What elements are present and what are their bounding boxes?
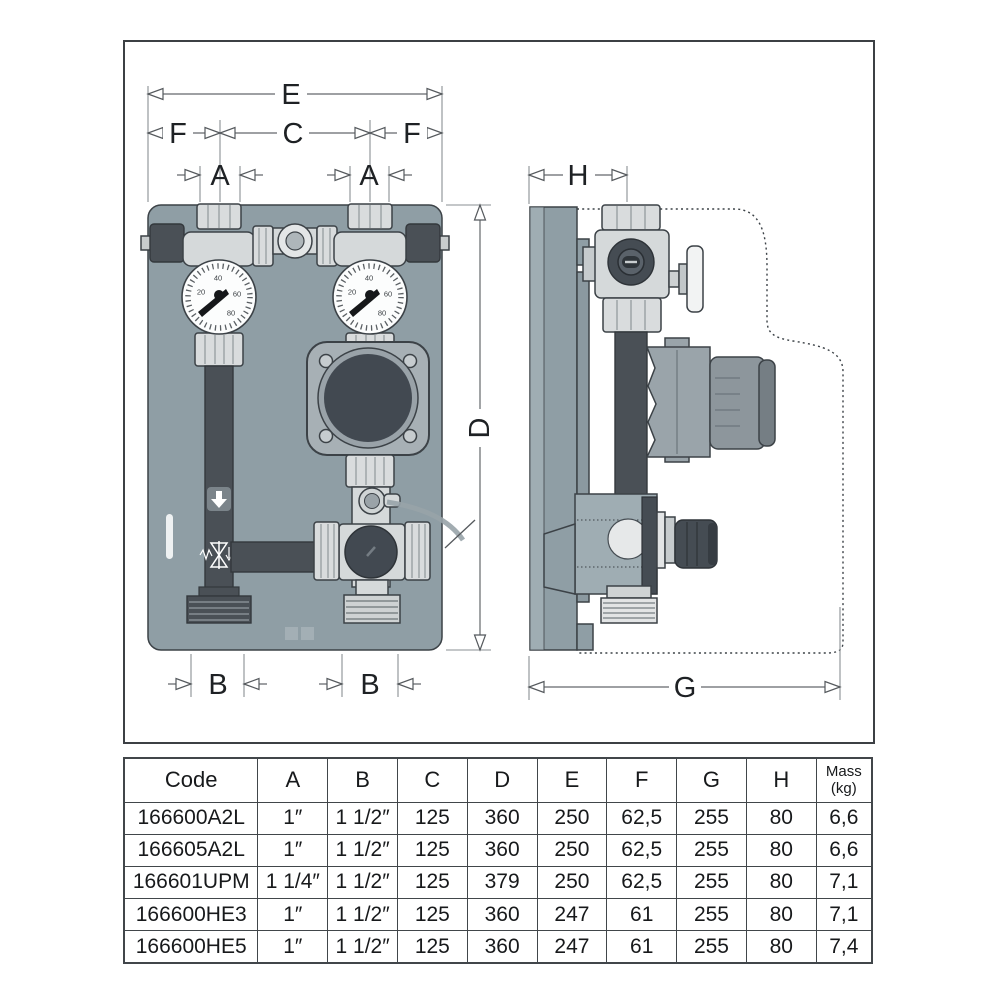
pump-motor (710, 357, 765, 449)
table-row: 166605A2L 1″ 1 1/2″ 125 360 250 62,5 255… (124, 834, 872, 866)
cell-code: 166600A2L (124, 802, 258, 834)
header-A: A (258, 758, 328, 802)
cell-B: 1 1/2″ (328, 834, 398, 866)
union-nut (346, 455, 394, 487)
cell-G: 255 (677, 866, 747, 898)
cell-G: 255 (677, 931, 747, 963)
dim-label-B-right: B (360, 669, 379, 701)
drawing-frame: 20 40 60 80 (123, 40, 875, 744)
header-D: D (467, 758, 537, 802)
cell-code: 166601UPM (124, 866, 258, 898)
cell-code: 166600HE5 (124, 931, 258, 963)
cell-D: 360 (467, 834, 537, 866)
cell-H: 80 (746, 931, 816, 963)
table-row: 166600HE5 1″ 1 1/2″ 125 360 247 61 255 8… (124, 931, 872, 963)
cell-D: 360 (467, 899, 537, 931)
table-header-row: Code A B C D E F G H Mass (kg) (124, 758, 872, 802)
technical-drawing-svg: 20 40 60 80 (125, 42, 873, 742)
dim-label-E: E (281, 79, 300, 111)
cell-F: 61 (607, 931, 677, 963)
page: 20 40 60 80 (0, 0, 1000, 1000)
cell-H: 80 (746, 802, 816, 834)
cell-code: 166600HE3 (124, 899, 258, 931)
branch-pipe (231, 542, 316, 572)
dim-label-C: C (283, 118, 304, 150)
valve-end-cap (150, 224, 184, 262)
cell-G: 255 (677, 802, 747, 834)
cell-C: 125 (397, 866, 467, 898)
cell-E: 250 (537, 834, 607, 866)
cell-D: 360 (467, 931, 537, 963)
cell-F: 62,5 (607, 866, 677, 898)
cell-G: 255 (677, 899, 747, 931)
cell-A: 1″ (258, 931, 328, 963)
dim-label-F-right: F (403, 118, 421, 150)
pump-side (647, 338, 775, 462)
specification-table-container: Code A B C D E F G H Mass (kg) 1 (123, 757, 873, 964)
cell-F: 62,5 (607, 802, 677, 834)
table-row: 166600A2L 1″ 1 1/2″ 125 360 250 62,5 255… (124, 802, 872, 834)
temperature-gauge-right (333, 260, 407, 334)
cell-E: 247 (537, 899, 607, 931)
cell-H: 80 (746, 834, 816, 866)
cell-B: 1 1/2″ (328, 802, 398, 834)
cell-A: 1″ (258, 899, 328, 931)
cell-H: 80 (746, 899, 816, 931)
valve-end-cap (406, 224, 440, 262)
header-G: G (677, 758, 747, 802)
union-nut (603, 298, 661, 332)
pipe-side (615, 332, 647, 502)
cell-A: 1″ (258, 802, 328, 834)
dim-label-G: G (674, 672, 697, 704)
cell-D: 379 (467, 866, 537, 898)
panel-slot (166, 514, 173, 559)
specification-table: Code A B C D E F G H Mass (kg) 1 (123, 757, 873, 964)
cell-B: 1 1/2″ (328, 866, 398, 898)
table-row: 166601UPM 1 1/4″ 1 1/2″ 125 379 250 62,5… (124, 866, 872, 898)
cell-B: 1 1/2″ (328, 899, 398, 931)
cell-C: 125 (397, 802, 467, 834)
valve-handle (687, 246, 703, 312)
cell-C: 125 (397, 899, 467, 931)
cell-F: 62,5 (607, 834, 677, 866)
cell-B: 1 1/2″ (328, 931, 398, 963)
union-nut (314, 522, 339, 580)
front-view (141, 204, 475, 650)
header-code: Code (124, 758, 258, 802)
cell-H: 80 (746, 866, 816, 898)
dim-label-F-left: F (169, 118, 187, 150)
side-valve (583, 205, 703, 332)
union-nut (405, 522, 430, 580)
header-H: H (746, 758, 816, 802)
pump-housing (647, 347, 710, 457)
dim-label-B-left: B (208, 669, 227, 701)
cell-E: 247 (537, 931, 607, 963)
motor-end-cap (759, 360, 775, 446)
header-C: C (397, 758, 467, 802)
dim-label-A-left: A (210, 160, 230, 192)
cell-C: 125 (397, 931, 467, 963)
dim-label-H: H (568, 160, 589, 192)
header-F: F (607, 758, 677, 802)
cell-A: 1″ (258, 834, 328, 866)
side-view (530, 205, 843, 653)
union-nut (195, 333, 243, 366)
panel-sheen (285, 627, 298, 640)
male-thread-connection (187, 596, 251, 623)
cell-E: 250 (537, 802, 607, 834)
union-nut (253, 226, 273, 266)
cell-F: 61 (607, 899, 677, 931)
cell-mass: 6,6 (816, 802, 872, 834)
cell-A: 1 1/4″ (258, 866, 328, 898)
pump-face (324, 354, 412, 442)
pipe-adapter (199, 587, 239, 596)
header-mass-line1: Mass (817, 763, 871, 780)
insulation-wedge (544, 524, 575, 594)
cell-C: 125 (397, 834, 467, 866)
cell-mass: 7,1 (816, 899, 872, 931)
cell-E: 250 (537, 866, 607, 898)
header-B: B (328, 758, 398, 802)
cell-D: 360 (467, 802, 537, 834)
cell-mass: 7,4 (816, 931, 872, 963)
dim-label-A-right: A (359, 160, 379, 192)
temperature-gauge-left (182, 260, 256, 334)
header-mass: Mass (kg) (816, 758, 872, 802)
header-E: E (537, 758, 607, 802)
header-mass-line2: (kg) (817, 780, 871, 797)
cell-mass: 6,6 (816, 834, 872, 866)
cell-mass: 7,1 (816, 866, 872, 898)
cell-G: 255 (677, 834, 747, 866)
panel-sheen (301, 627, 314, 640)
table-row: 166600HE3 1″ 1 1/2″ 125 360 247 61 255 8… (124, 899, 872, 931)
male-thread-connection (601, 598, 657, 623)
panel-foot (577, 624, 593, 650)
dim-label-D: D (464, 418, 496, 439)
cell-code: 166605A2L (124, 834, 258, 866)
